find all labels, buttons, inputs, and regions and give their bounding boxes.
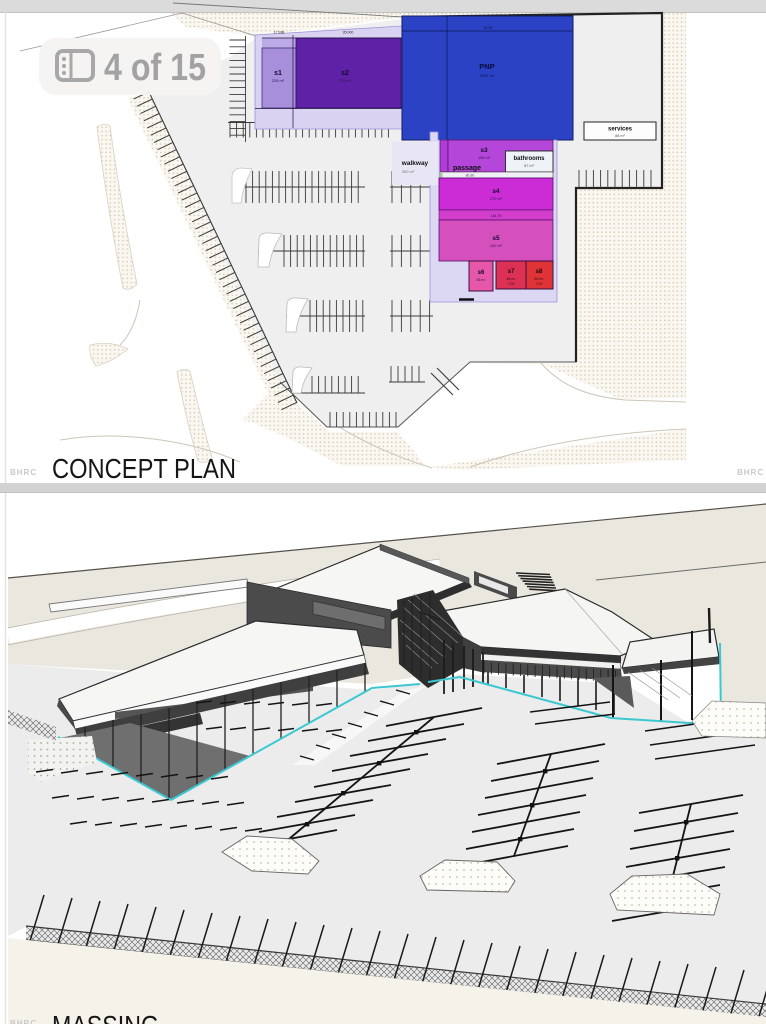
svg-text:s3: s3 bbox=[480, 147, 488, 154]
svg-text:s5: s5 bbox=[492, 235, 500, 242]
svg-text:190 m²: 190 m² bbox=[478, 156, 491, 160]
svg-text:s2: s2 bbox=[341, 70, 349, 77]
svg-text:59 m²: 59 m² bbox=[535, 277, 545, 281]
svg-text:4 of 15: 4 of 15 bbox=[104, 47, 206, 89]
svg-text:86.80: 86.80 bbox=[466, 174, 475, 178]
svg-text:bathrooms: bathrooms bbox=[513, 156, 545, 162]
svg-text:passage: passage bbox=[453, 165, 481, 172]
svg-text:PNP: PNP bbox=[479, 62, 494, 71]
svg-text:61.00: 61.00 bbox=[484, 26, 493, 30]
svg-text:87 m²: 87 m² bbox=[524, 164, 534, 168]
svg-text:58 m²: 58 m² bbox=[477, 278, 487, 282]
svg-text:7.00: 7.00 bbox=[536, 282, 543, 286]
svg-text:s4: s4 bbox=[492, 188, 500, 195]
svg-text:services: services bbox=[608, 127, 633, 133]
svg-text:226 m²: 226 m² bbox=[272, 78, 285, 83]
svg-text:703 m²: 703 m² bbox=[339, 78, 352, 83]
svg-text:s7: s7 bbox=[508, 269, 515, 275]
svg-text:BHRC: BHRC bbox=[10, 468, 37, 477]
svg-text:2531 m²: 2531 m² bbox=[480, 73, 495, 78]
svg-text:7.00: 7.00 bbox=[508, 282, 515, 286]
svg-text:54 m²: 54 m² bbox=[507, 277, 517, 281]
svg-text:s6: s6 bbox=[478, 270, 485, 276]
svg-text:s1: s1 bbox=[274, 70, 282, 77]
svg-text:MASSING: MASSING bbox=[52, 1010, 159, 1024]
svg-text:144.75: 144.75 bbox=[491, 214, 502, 218]
svg-text:BHRC: BHRC bbox=[737, 468, 764, 477]
svg-text:300 m²: 300 m² bbox=[402, 169, 415, 174]
svg-text:17.998: 17.998 bbox=[274, 31, 285, 35]
svg-text:35.000: 35.000 bbox=[343, 31, 354, 35]
svg-text:270 m²: 270 m² bbox=[490, 197, 503, 201]
svg-text:CONCEPT PLAN: CONCEPT PLAN bbox=[52, 453, 236, 484]
svg-text:s8: s8 bbox=[536, 269, 543, 275]
svg-text:420 m²: 420 m² bbox=[490, 244, 503, 248]
svg-text:walkway: walkway bbox=[401, 160, 429, 167]
svg-text:BHRC: BHRC bbox=[10, 1019, 37, 1024]
svg-text:88 m²: 88 m² bbox=[615, 134, 625, 138]
